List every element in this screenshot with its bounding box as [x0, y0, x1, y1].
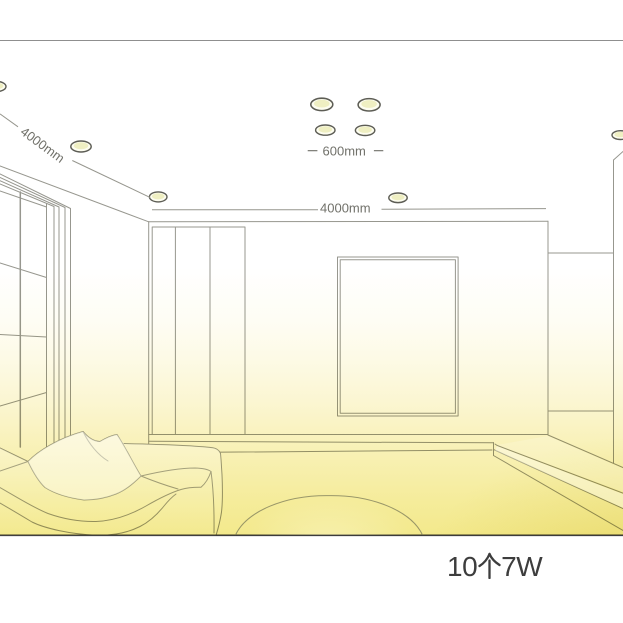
svg-text:4000mm: 4000mm: [320, 201, 371, 216]
svg-text:600mm: 600mm: [323, 143, 366, 158]
svg-text:4000mm: 4000mm: [18, 124, 68, 166]
